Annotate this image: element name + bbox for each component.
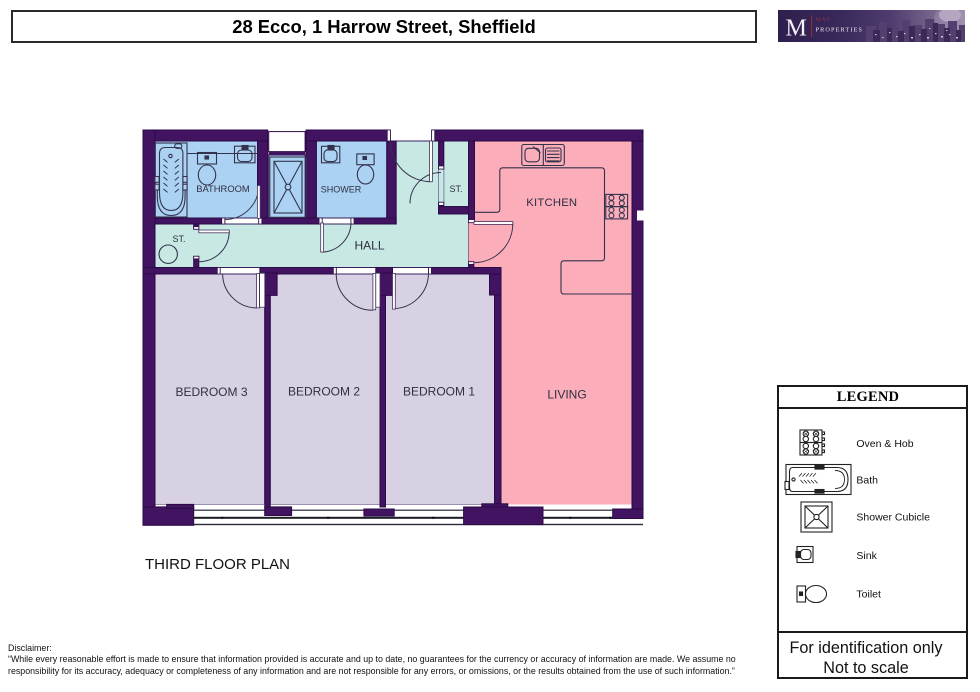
svg-text:THIRD FLOOR PLAN: THIRD FLOOR PLAN (145, 556, 290, 573)
svg-text:HALL: HALL (354, 239, 384, 253)
svg-text:SHOWER: SHOWER (321, 184, 362, 194)
svg-text:KITCHEN: KITCHEN (526, 197, 577, 209)
svg-text:BATHROOM: BATHROOM (196, 183, 250, 194)
svg-text:Sink: Sink (856, 550, 877, 562)
svg-text:BEDROOM 3: BEDROOM 3 (175, 385, 247, 399)
svg-text:Shower Cubicle: Shower Cubicle (856, 512, 930, 524)
svg-text:Oven & Hob: Oven & Hob (856, 438, 913, 450)
svg-text:ST.: ST. (449, 184, 462, 194)
svg-text:ST.: ST. (172, 234, 185, 244)
svg-text:Toilet: Toilet (856, 589, 881, 601)
svg-text:BEDROOM 2: BEDROOM 2 (288, 385, 360, 399)
svg-text:BEDROOM 1: BEDROOM 1 (403, 385, 475, 399)
svg-text:LIVING: LIVING (547, 388, 586, 402)
svg-text:Bath: Bath (856, 475, 878, 487)
